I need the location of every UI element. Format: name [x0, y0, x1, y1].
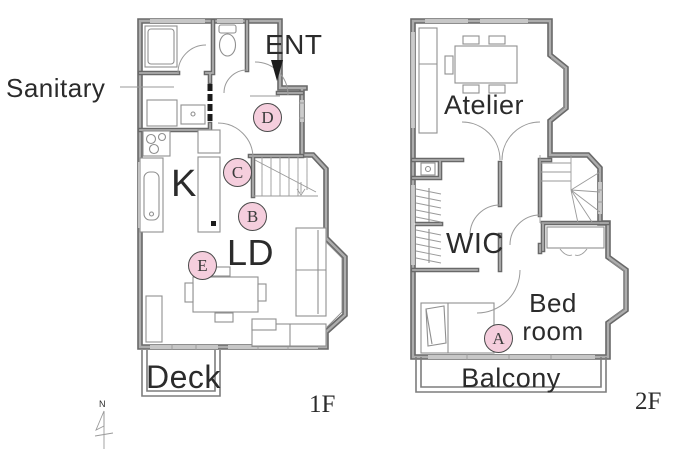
marker-b: B	[238, 202, 267, 231]
toilet-icon	[219, 25, 236, 56]
door-arcs-1f	[178, 45, 288, 158]
room-label-deck: Deck	[146, 360, 216, 396]
room-label-balcony: Balcony	[415, 363, 607, 393]
room-label-ent: ENT	[265, 29, 323, 60]
room-label-wic: WIC	[446, 228, 504, 260]
marker-c: C	[223, 158, 252, 187]
marker-letter: D	[261, 108, 273, 128]
room-label-bedroom-line2: room	[511, 317, 595, 345]
washbasin-icon	[421, 163, 435, 175]
room-label-kitchen: K	[171, 163, 197, 206]
room-label-bedroom: Bed room	[511, 289, 595, 345]
bed-icon	[421, 303, 494, 353]
bathtub-icon	[145, 26, 177, 67]
floorplan-canvas: Sanitary ENT K LD Deck 1F Atelier WIC Be…	[0, 0, 680, 456]
marker-a: A	[484, 324, 513, 353]
marker-e: E	[188, 251, 217, 280]
marker-d: D	[253, 103, 282, 132]
sliding-door-icon	[208, 84, 213, 121]
stairs-2f	[540, 155, 600, 223]
door-arcs-2f	[462, 122, 540, 313]
room-label-ld: LD	[227, 233, 274, 273]
marker-letter: E	[197, 256, 207, 276]
compass-north-label: N	[99, 399, 106, 409]
stairs-1f	[253, 157, 318, 196]
room-label-bedroom-line1: Bed	[511, 289, 595, 317]
washstand-icon	[147, 100, 205, 126]
compass-icon	[95, 411, 113, 449]
marker-letter: B	[247, 207, 258, 227]
floor1-plan	[120, 21, 345, 396]
floor-label-2f: 2F	[635, 388, 661, 416]
closet-icon	[547, 227, 604, 255]
room-label-sanitary: Sanitary	[6, 74, 105, 103]
room-label-atelier: Atelier	[444, 90, 524, 120]
floor-label-1f: 1F	[309, 391, 335, 419]
cabinet-icon	[146, 296, 162, 342]
marker-letter: C	[232, 163, 243, 183]
marker-letter: A	[492, 329, 504, 349]
